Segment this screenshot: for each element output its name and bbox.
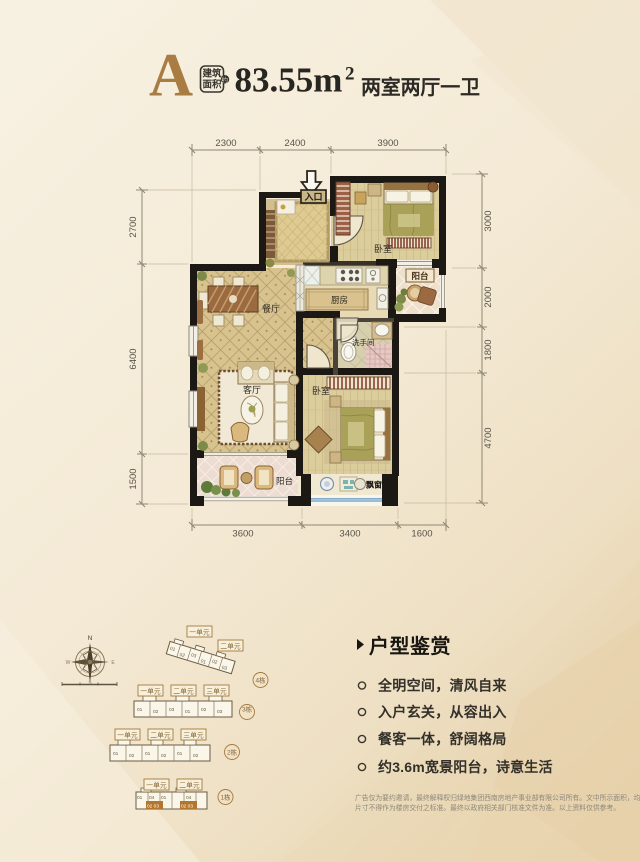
svg-text:02: 02 — [153, 709, 159, 715]
svg-text:2400: 2400 — [284, 138, 305, 149]
svg-text:3600: 3600 — [232, 529, 253, 540]
svg-text:两室两厅一卫: 两室两厅一卫 — [361, 75, 480, 99]
svg-text:一单元: 一单元 — [140, 687, 161, 696]
svg-text:01: 01 — [185, 709, 191, 715]
svg-text:全明空间，清风自来: 全明空间，清风自来 — [377, 678, 507, 694]
svg-text:约3.6m宽景阳台，诗意生活: 约3.6m宽景阳台，诗意生活 — [378, 759, 553, 775]
svg-text:二单元: 二单元 — [150, 731, 171, 740]
svg-text:三单元: 三单元 — [206, 687, 227, 696]
svg-text:3000: 3000 — [483, 210, 494, 231]
svg-text:餐客一体，舒阔格局: 餐客一体，舒阔格局 — [377, 731, 507, 747]
svg-text:1500: 1500 — [128, 468, 139, 489]
svg-text:01: 01 — [161, 795, 167, 801]
svg-text:02: 02 — [201, 707, 207, 713]
svg-text:2000: 2000 — [483, 286, 494, 307]
svg-text:入口: 入口 — [303, 192, 322, 202]
svg-text:02 03: 02 03 — [181, 804, 193, 810]
svg-text:2300: 2300 — [215, 138, 236, 149]
svg-text:W: W — [66, 660, 71, 666]
svg-text:广告仅为要约邀请，最终解释权归绿地集团西南房地产事业部有限公: 广告仅为要约邀请，最终解释权归绿地集团西南房地产事业部有限公司所有。文中所示面积… — [355, 793, 640, 802]
svg-text:02: 02 — [193, 753, 199, 759]
svg-text:01: 01 — [113, 751, 119, 757]
svg-text:2: 2 — [345, 64, 355, 85]
svg-text:01: 01 — [177, 751, 183, 757]
svg-text:1800: 1800 — [483, 339, 494, 360]
svg-text:01: 01 — [137, 795, 143, 801]
svg-text:二单元: 二单元 — [220, 642, 241, 651]
svg-text:建筑: 建筑 — [201, 68, 222, 80]
svg-text:02: 02 — [161, 753, 167, 759]
svg-text:03: 03 — [217, 709, 223, 715]
svg-text:户型鉴赏: 户型鉴赏 — [369, 634, 451, 658]
svg-text:2栋: 2栋 — [227, 748, 238, 757]
svg-text:1600: 1600 — [411, 529, 432, 540]
svg-text:04: 04 — [149, 795, 155, 801]
svg-text:飘窗: 飘窗 — [366, 480, 382, 490]
svg-text:片寸不得作为楼房交付之标准。最终以政府相关部门核准文件为准。: 片寸不得作为楼房交付之标准。最终以政府相关部门核准文件为准。以上资料仅供参考。 — [355, 803, 620, 812]
svg-text:3900: 3900 — [377, 138, 398, 149]
svg-text:2700: 2700 — [128, 216, 139, 237]
svg-text:卧室: 卧室 — [312, 385, 330, 396]
svg-text:3400: 3400 — [339, 529, 360, 540]
svg-text:01: 01 — [145, 751, 151, 757]
svg-text:4700: 4700 — [483, 427, 494, 448]
svg-text:面积: 面积 — [202, 79, 222, 91]
svg-text:卧室: 卧室 — [374, 243, 392, 254]
svg-text:二单元: 二单元 — [179, 781, 200, 790]
svg-text:02 03: 02 03 — [147, 804, 159, 810]
svg-text:1栋: 1栋 — [220, 793, 231, 802]
svg-text:04: 04 — [186, 795, 192, 801]
svg-text:约: 约 — [222, 75, 229, 84]
svg-text:入户玄关，从容出入: 入户玄关，从容出入 — [378, 704, 507, 720]
svg-text:3栋: 3栋 — [242, 705, 253, 714]
svg-text:83.55m: 83.55m — [235, 61, 343, 100]
svg-text:厨房: 厨房 — [331, 295, 348, 305]
svg-text:01: 01 — [137, 707, 143, 713]
svg-text:洗手间: 洗手间 — [352, 337, 375, 347]
svg-text:三单元: 三单元 — [183, 731, 204, 740]
svg-text:客厅: 客厅 — [243, 384, 261, 395]
svg-text:阳台: 阳台 — [411, 271, 429, 281]
svg-text:一单元: 一单元 — [146, 781, 167, 790]
svg-text:餐厅: 餐厅 — [262, 303, 280, 314]
svg-text:03: 03 — [169, 707, 175, 713]
svg-text:02: 02 — [129, 753, 135, 759]
svg-text:A: A — [149, 43, 193, 110]
svg-text:二单元: 二单元 — [173, 687, 194, 696]
svg-text:一单元: 一单元 — [117, 731, 138, 740]
svg-text:N: N — [88, 635, 93, 642]
svg-text:一单元: 一单元 — [189, 628, 210, 637]
svg-text:6400: 6400 — [128, 348, 139, 369]
svg-text:4栋: 4栋 — [255, 676, 266, 685]
svg-text:阳台: 阳台 — [276, 476, 293, 486]
